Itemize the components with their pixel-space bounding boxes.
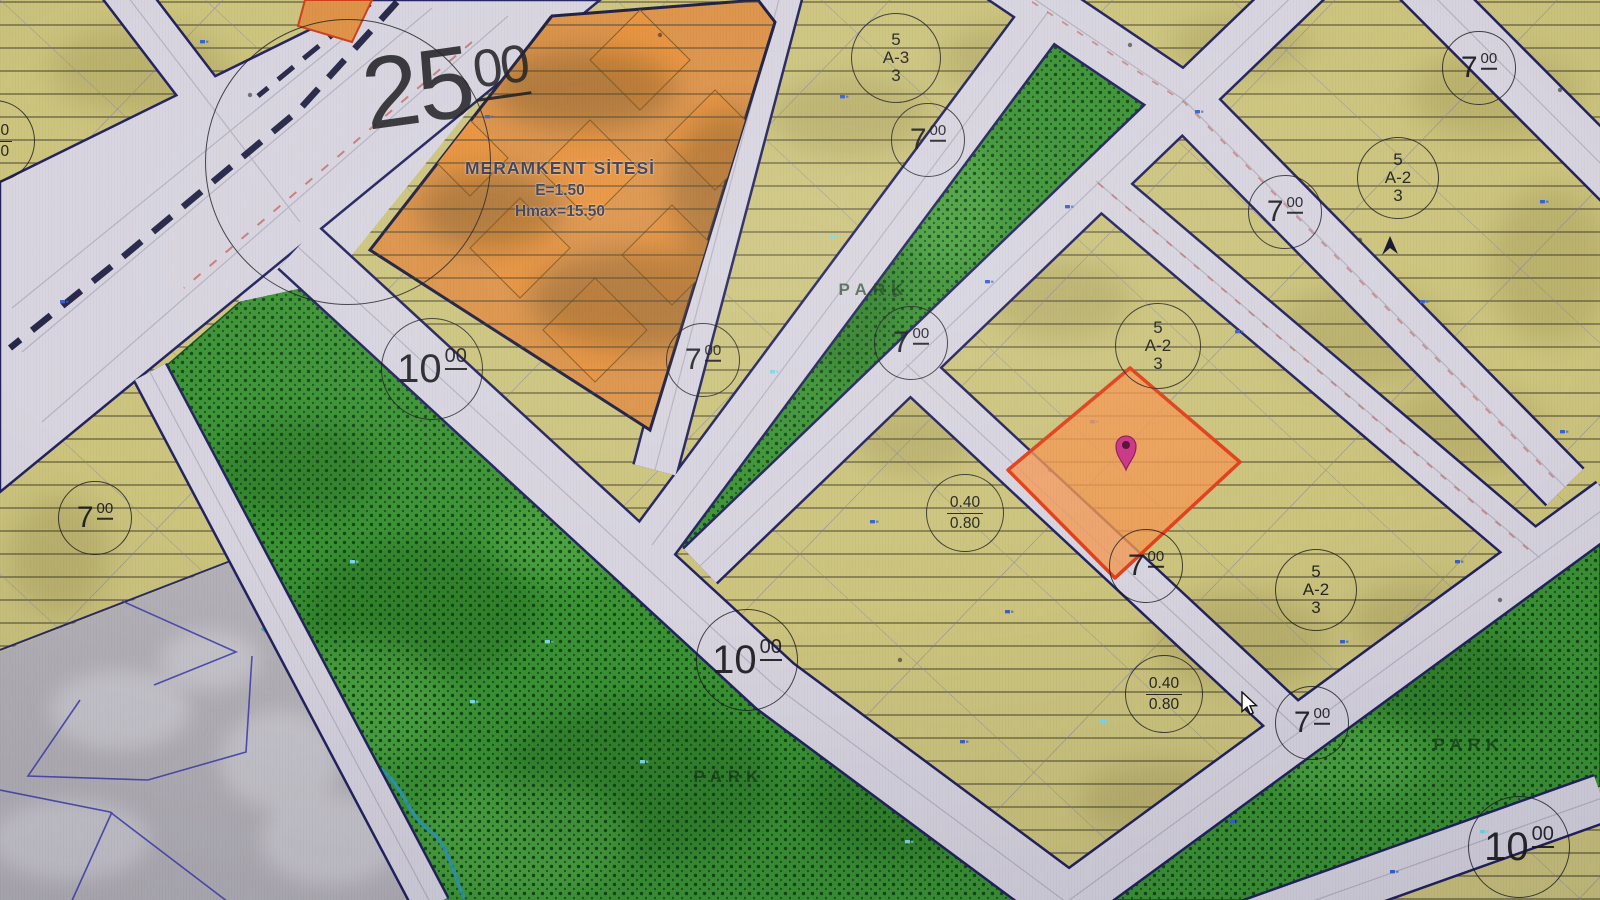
zoning-map-canvas[interactable] bbox=[0, 0, 1600, 900]
mouse-cursor bbox=[1241, 691, 1263, 722]
zoning-map-viewport[interactable]: MERAMKENT SİTESİ E=1.50 Hmax=15.50 25001… bbox=[0, 0, 1600, 900]
